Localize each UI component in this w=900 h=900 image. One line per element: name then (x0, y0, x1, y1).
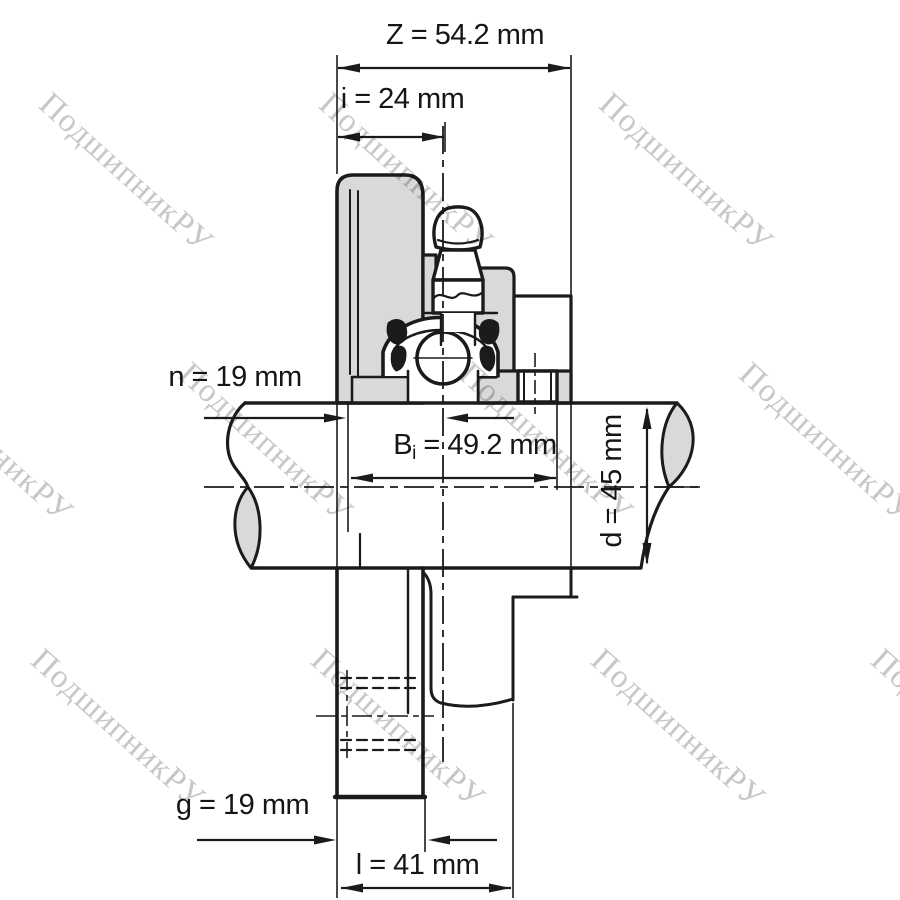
seal-right (479, 320, 499, 344)
dim-n-arrow (204, 414, 514, 423)
dim-label-d: d = 45 mm (597, 411, 637, 551)
dim-Bi-value: = 49.2 mm (416, 429, 557, 461)
bolt-hole-hidden-lines (341, 678, 421, 750)
shaft-break-right (662, 403, 693, 487)
dim-label-Bi: Bi = 49.2 mm (385, 430, 565, 465)
dim-g-arrow (197, 836, 497, 845)
dim-label-l: l = 41 mm (350, 850, 485, 882)
shaft-break-left (235, 487, 260, 568)
dim-label-Z: Z = 54.2 mm (375, 20, 555, 52)
flange-lower-profile (335, 534, 577, 797)
dim-l-arrow (341, 884, 511, 893)
dim-Z-arrow (338, 64, 570, 73)
dim-label-i: i = 24 mm (330, 84, 475, 116)
dim-label-g: g = 19 mm (170, 790, 315, 822)
dim-Bi-arrow (351, 474, 556, 483)
dim-d-arrow (643, 407, 652, 565)
dim-Bi-symbol: B (393, 429, 412, 461)
dim-label-n: n = 19 mm (165, 362, 305, 394)
dim-i-arrow (338, 133, 444, 142)
seal-left (387, 320, 407, 344)
set-screw (518, 371, 557, 402)
drawing-canvas: Z = 54.2 mm i = 24 mm n = 19 mm Bi = 49.… (0, 0, 900, 900)
